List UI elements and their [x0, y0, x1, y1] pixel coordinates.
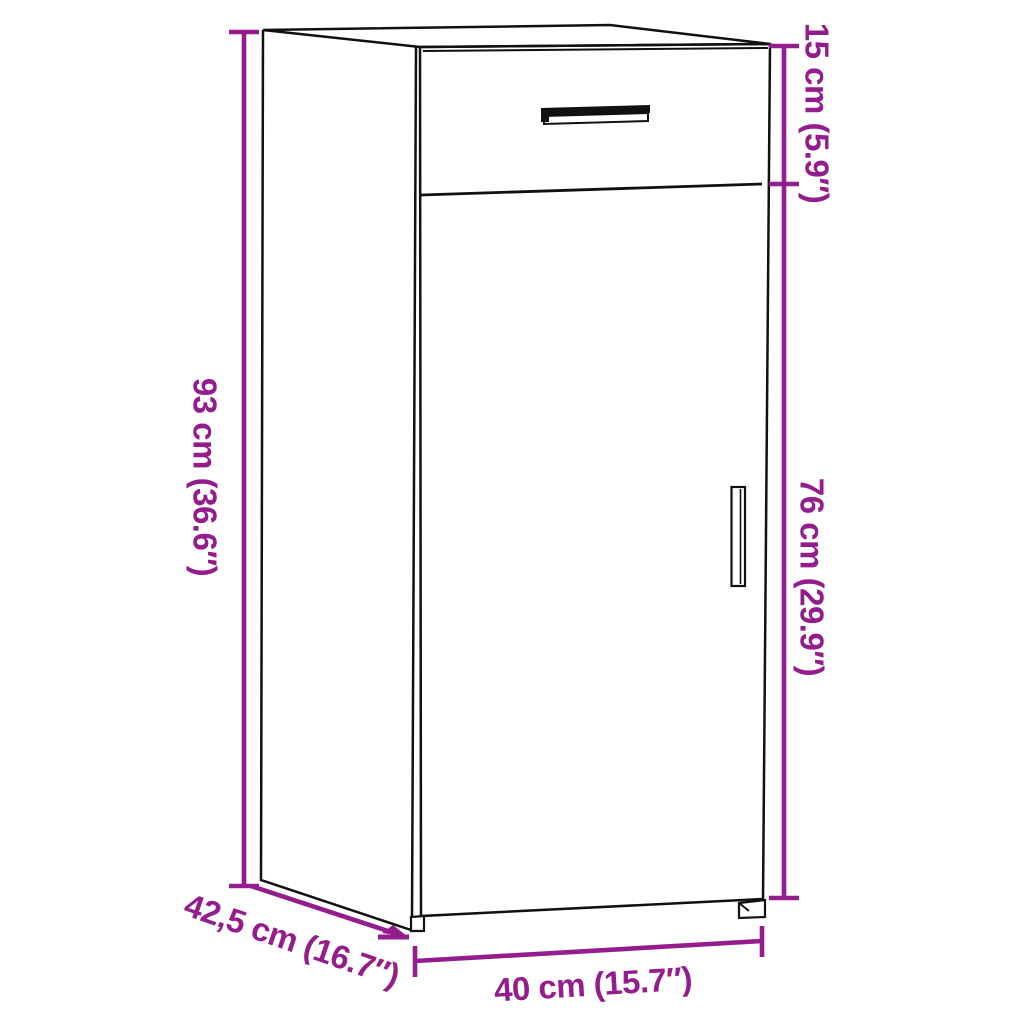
- drawer-handle-body: [544, 113, 648, 124]
- door-handle: [732, 487, 746, 586]
- drawer-divider-line: [421, 184, 762, 195]
- drawer-top-edge: [423, 48, 768, 51]
- right-dimension-line: [769, 46, 799, 898]
- cabinet-diagram-svg: [0, 0, 1024, 1024]
- drawer-handle: [541, 105, 650, 124]
- cabinet-front-left-edge: [412, 47, 416, 917]
- dimension-diagram: 93 cm (36.6″) 15 cm (5.9″) 76 cm (29.9″)…: [0, 0, 1024, 1024]
- cabinet-front-face: [420, 44, 770, 916]
- door-handle-body: [732, 487, 746, 586]
- height-dimension-line: [229, 32, 259, 886]
- dimension-lines-group: [229, 32, 799, 977]
- cabinet-foot-right: [739, 900, 765, 918]
- height-dimension-label: 93 cm (36.6″): [189, 378, 222, 576]
- cabinet-foot-left: [411, 916, 424, 931]
- cabinet-outline-group: [261, 25, 770, 931]
- door-height-dimension-label: 76 cm (29.9″): [796, 478, 829, 676]
- drawer-height-dimension-label: 15 cm (5.9″): [801, 23, 834, 203]
- cabinet-left-panel: [261, 30, 411, 930]
- drawer-handle-cap: [541, 108, 549, 122]
- width-line: [415, 941, 762, 961]
